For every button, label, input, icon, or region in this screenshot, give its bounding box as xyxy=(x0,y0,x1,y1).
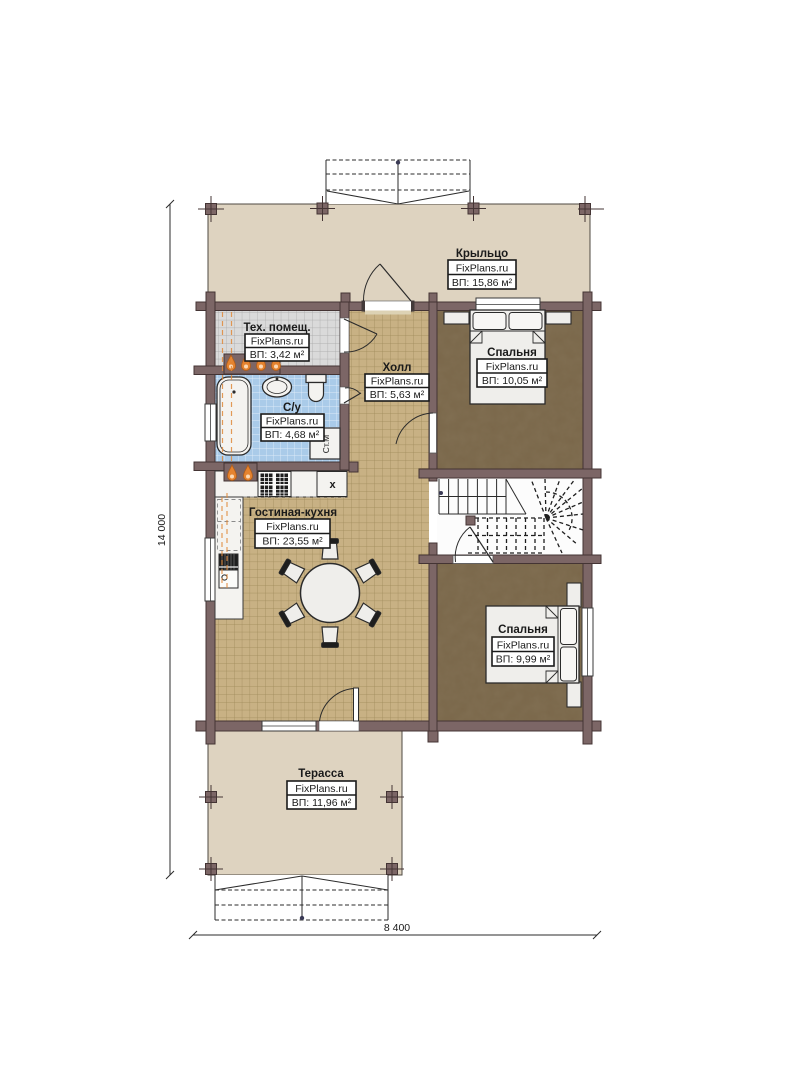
svg-text:Крыльцо: Крыльцо xyxy=(456,248,508,260)
svg-text:FixPlans.ru: FixPlans.ru xyxy=(456,263,509,275)
svg-text:Гостиная-кухня: Гостиная-кухня xyxy=(249,507,337,519)
svg-text:8 400: 8 400 xyxy=(384,922,410,934)
svg-text:ВП: 15,86 м²: ВП: 15,86 м² xyxy=(452,277,513,289)
svg-text:х: х xyxy=(329,479,336,491)
svg-text:Спальня: Спальня xyxy=(498,624,548,636)
svg-text:ВП: 10,05 м²: ВП: 10,05 м² xyxy=(482,375,543,387)
svg-text:FixPlans.ru: FixPlans.ru xyxy=(266,521,319,533)
svg-text:Спальня: Спальня xyxy=(487,347,537,359)
svg-text:FixPlans.ru: FixPlans.ru xyxy=(371,376,424,388)
svg-text:FixPlans.ru: FixPlans.ru xyxy=(486,361,539,373)
svg-text:Холл: Холл xyxy=(383,362,412,374)
svg-text:FixPlans.ru: FixPlans.ru xyxy=(497,640,550,652)
svg-text:Тех. помещ.: Тех. помещ. xyxy=(243,322,310,334)
svg-text:FixPlans.ru: FixPlans.ru xyxy=(251,336,304,348)
svg-text:ВП: 9,99 м²: ВП: 9,99 м² xyxy=(496,654,551,666)
svg-text:FixPlans.ru: FixPlans.ru xyxy=(295,783,348,795)
svg-text:ВП: 4,68 м²: ВП: 4,68 м² xyxy=(265,429,320,441)
svg-text:ВП: 23,55 м²: ВП: 23,55 м² xyxy=(262,536,323,548)
svg-text:Терасса: Терасса xyxy=(298,768,344,780)
svg-text:С/у: С/у xyxy=(283,402,302,414)
svg-text:ВП: 11,96 м²: ВП: 11,96 м² xyxy=(292,797,352,809)
svg-text:ВП: 5,63 м²: ВП: 5,63 м² xyxy=(370,389,425,401)
svg-text:ВП: 3,42 м²: ВП: 3,42 м² xyxy=(250,349,305,361)
svg-text:FixPlans.ru: FixPlans.ru xyxy=(266,416,319,428)
svg-text:14 000: 14 000 xyxy=(156,514,168,546)
